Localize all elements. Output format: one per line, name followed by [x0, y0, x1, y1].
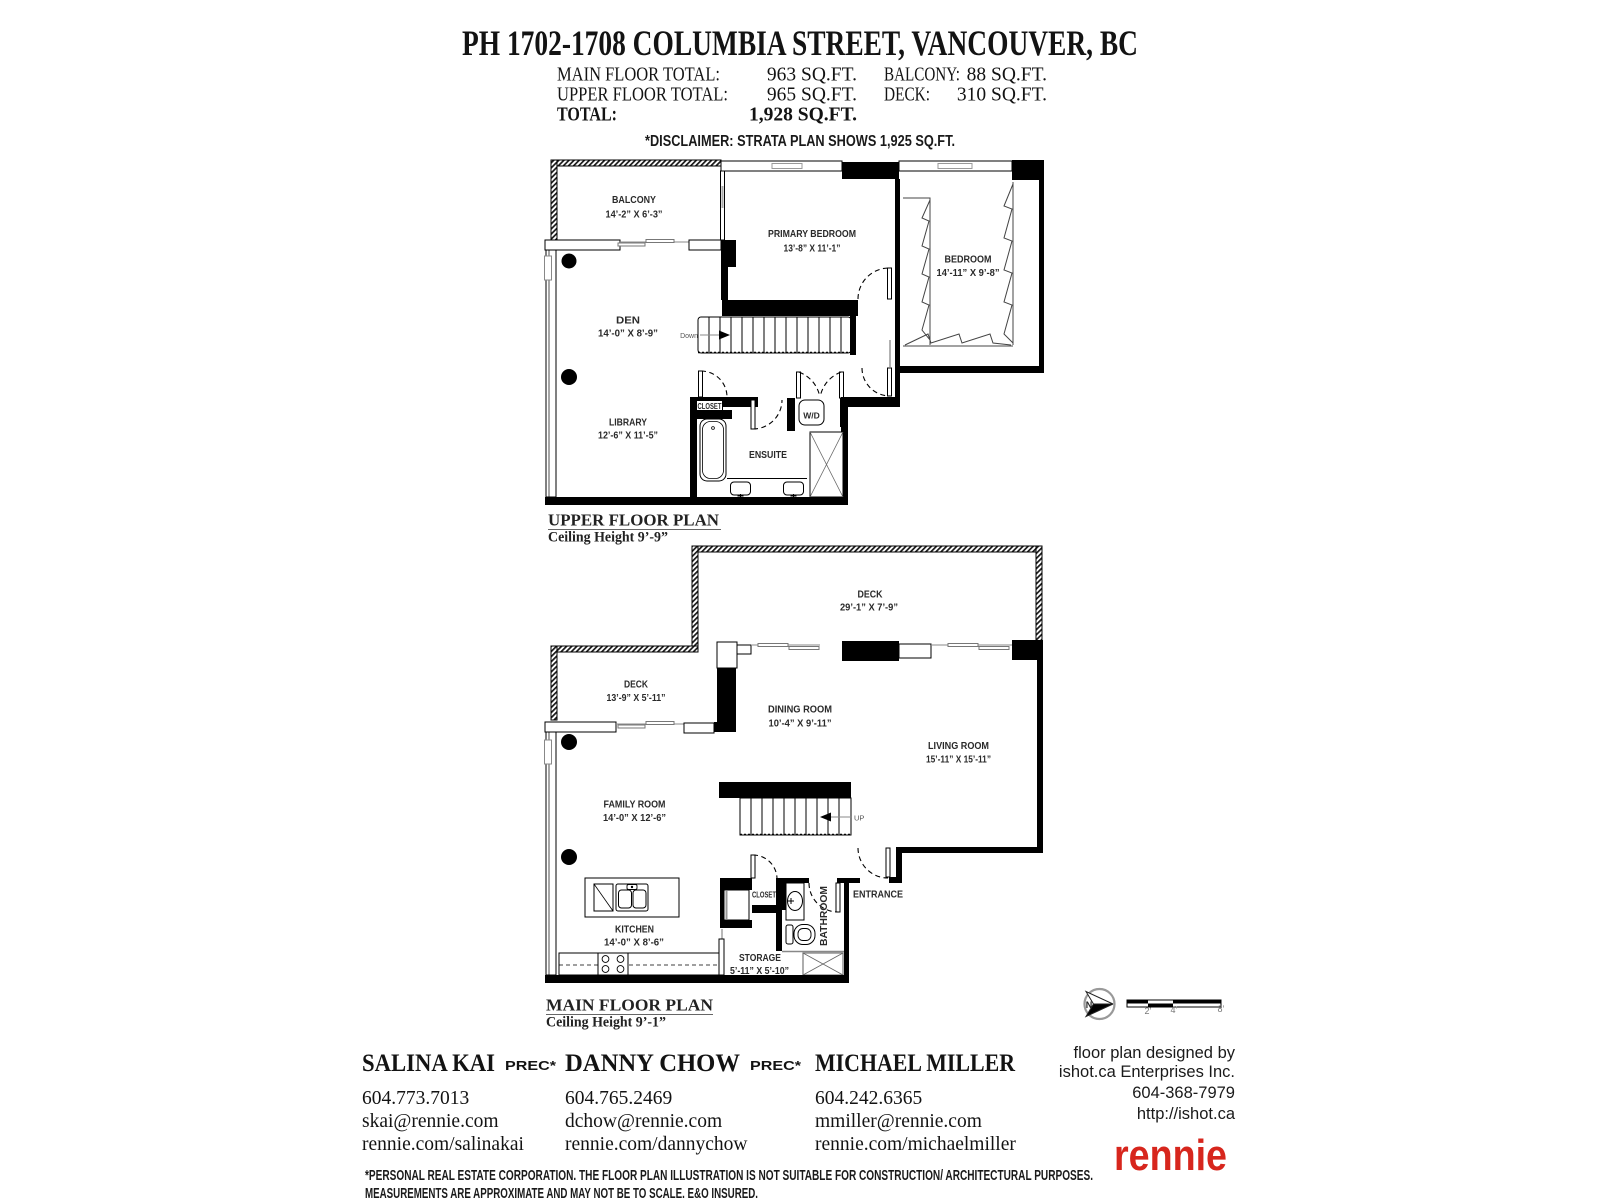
svg-text:604.773.7013: 604.773.7013: [362, 1088, 469, 1109]
svg-text:12’-6” X 11’-5”: 12’-6” X 11’-5”: [598, 430, 658, 442]
svg-text:floor plan designed by: floor plan designed by: [1074, 1044, 1236, 1062]
svg-text:DECK: DECK: [624, 679, 648, 691]
svg-text:DANNY CHOW: DANNY CHOW: [565, 1050, 740, 1077]
svg-text:14’-0” X 12’-6”: 14’-0” X 12’-6”: [603, 812, 666, 824]
svg-text:PH 1702-1708 COLUMBIA STREET,: PH 1702-1708 COLUMBIA STREET, VANCOUVER,…: [462, 23, 1138, 63]
svg-text:SALINA KAI: SALINA KAI: [362, 1050, 495, 1077]
svg-text:TOTAL:: TOTAL:: [557, 105, 617, 126]
svg-text:CLOSET: CLOSET: [698, 402, 722, 411]
svg-text:BALCONY: BALCONY: [612, 194, 656, 206]
svg-text:MEASUREMENTS ARE APPROXIMATE A: MEASUREMENTS ARE APPROXIMATE AND MAY NOT…: [365, 1186, 758, 1200]
svg-text:rennie.com/dannychow: rennie.com/dannychow: [565, 1134, 747, 1155]
svg-text:dchow@rennie.com: dchow@rennie.com: [565, 1111, 722, 1132]
svg-text:13’-8” X 11’-1”: 13’-8” X 11’-1”: [784, 243, 841, 255]
svg-text:CLOSET: CLOSET: [752, 891, 776, 900]
svg-text:skai@rennie.com: skai@rennie.com: [362, 1111, 499, 1132]
svg-text:604.242.6365: 604.242.6365: [815, 1088, 922, 1109]
svg-text:1,928 SQ.FT.: 1,928 SQ.FT.: [749, 105, 857, 126]
svg-text:mmiller@rennie.com: mmiller@rennie.com: [815, 1111, 982, 1132]
svg-text:rennie.com/michaelmiller: rennie.com/michaelmiller: [815, 1134, 1016, 1155]
svg-text:UPPER FLOOR TOTAL:: UPPER FLOOR TOTAL:: [557, 85, 728, 106]
svg-text:DINING ROOM: DINING ROOM: [768, 704, 832, 716]
svg-text:BEDROOM: BEDROOM: [945, 254, 992, 266]
svg-text:http://ishot.ca: http://ishot.ca: [1137, 1105, 1236, 1123]
svg-text:Down: Down: [680, 333, 698, 340]
svg-text:W/D: W/D: [803, 411, 820, 421]
svg-text:15’-11” X 15’-11”: 15’-11” X 15’-11”: [926, 754, 991, 766]
svg-text:604.765.2469: 604.765.2469: [565, 1088, 672, 1109]
svg-text:88 SQ.FT.: 88 SQ.FT.: [967, 65, 1047, 86]
svg-text:UPPER FLOOR PLAN: UPPER FLOOR PLAN: [548, 511, 720, 530]
svg-text:FAMILY ROOM: FAMILY ROOM: [604, 799, 666, 811]
svg-text:N: N: [1086, 1000, 1093, 1010]
svg-text:KITCHEN: KITCHEN: [615, 924, 654, 936]
svg-text:LIVING ROOM: LIVING ROOM: [928, 740, 989, 752]
svg-text:DECK: DECK: [858, 589, 883, 601]
svg-text:ishot.ca Enterprises Inc.: ishot.ca Enterprises Inc.: [1059, 1063, 1235, 1081]
svg-text:Ceiling Height 9’-1”: Ceiling Height 9’-1”: [546, 1015, 666, 1031]
svg-text:BALCONY:: BALCONY:: [884, 65, 960, 86]
svg-text:rennie.com/salinakai: rennie.com/salinakai: [362, 1134, 524, 1155]
svg-text:ENTRANCE: ENTRANCE: [853, 889, 903, 901]
svg-text:965 SQ.FT.: 965 SQ.FT.: [767, 85, 857, 106]
svg-text:2’: 2’: [1144, 1006, 1151, 1016]
svg-text:DECK:: DECK:: [884, 85, 930, 106]
svg-text:*PERSONAL REAL ESTATE CORPORAT: *PERSONAL REAL ESTATE CORPORATION. THE F…: [365, 1168, 1093, 1184]
svg-text:MAIN FLOOR TOTAL:: MAIN FLOOR TOTAL:: [557, 65, 720, 86]
svg-text:13’-9” X 5’-11”: 13’-9” X 5’-11”: [607, 692, 666, 704]
svg-text:MICHAEL MILLER: MICHAEL MILLER: [815, 1050, 1016, 1077]
svg-text:PREC*: PREC*: [505, 1058, 557, 1073]
svg-text:rennie: rennie: [1114, 1131, 1227, 1180]
svg-text:DEN: DEN: [616, 315, 640, 327]
svg-text:963 SQ.FT.: 963 SQ.FT.: [767, 65, 857, 86]
svg-text:10’-4” X 9’-11”: 10’-4” X 9’-11”: [769, 718, 832, 730]
svg-text:604-368-7979: 604-368-7979: [1132, 1084, 1235, 1102]
svg-text:310 SQ.FT.: 310 SQ.FT.: [957, 85, 1047, 106]
svg-text:Ceiling Height 9’-9”: Ceiling Height 9’-9”: [548, 530, 668, 546]
svg-text:ENSUITE: ENSUITE: [749, 449, 787, 461]
svg-text:*DISCLAIMER: STRATA PLAN SHOWS: *DISCLAIMER: STRATA PLAN SHOWS 1,925 SQ.…: [645, 133, 955, 150]
svg-text:STORAGE: STORAGE: [739, 952, 781, 964]
svg-text:UP: UP: [854, 814, 864, 823]
svg-text:14’-0” X 8’-9”: 14’-0” X 8’-9”: [598, 328, 658, 340]
svg-text:MAIN FLOOR PLAN: MAIN FLOOR PLAN: [546, 996, 714, 1015]
svg-text:14’-2” X 6’-3”: 14’-2” X 6’-3”: [606, 209, 663, 221]
svg-text:PRIMARY BEDROOM: PRIMARY BEDROOM: [768, 228, 856, 240]
svg-text:14’-0” X 8’-6”: 14’-0” X 8’-6”: [604, 937, 664, 949]
svg-text:29’-1” X 7’-9”: 29’-1” X 7’-9”: [840, 602, 898, 614]
svg-text:BATHROOM: BATHROOM: [819, 886, 830, 946]
svg-text:8’: 8’: [1217, 1004, 1224, 1014]
svg-text:14’-11” X 9’-8”: 14’-11” X 9’-8”: [937, 267, 1000, 279]
svg-text:LIBRARY: LIBRARY: [609, 417, 647, 429]
svg-text:PREC*: PREC*: [750, 1058, 802, 1073]
svg-text:4’: 4’: [1170, 1005, 1177, 1015]
